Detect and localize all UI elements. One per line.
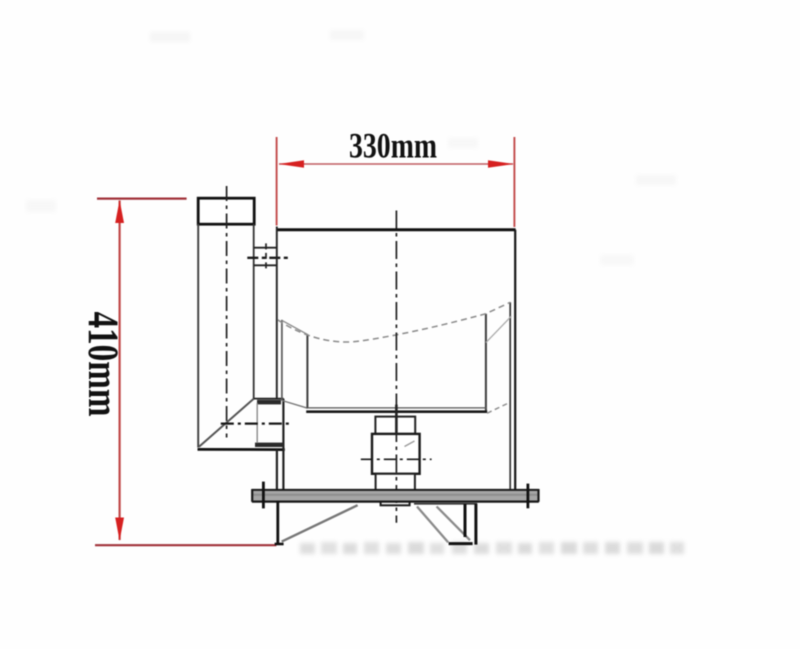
svg-text:410mm: 410mm	[79, 312, 126, 417]
svg-text:330mm: 330mm	[349, 126, 437, 166]
